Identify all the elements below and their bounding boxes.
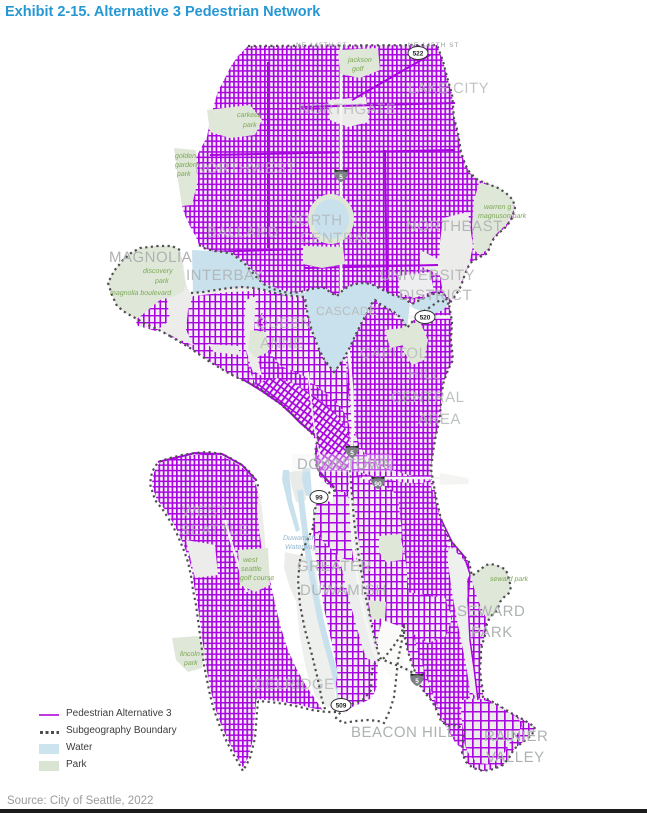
svg-text:509: 509: [336, 703, 347, 710]
svg-text:golf course: golf course: [240, 574, 274, 582]
svg-text:magnuson park: magnuson park: [478, 212, 527, 220]
svg-text:5: 5: [415, 678, 419, 685]
svg-text:seward park: seward park: [490, 575, 529, 583]
svg-text:golden: golden: [175, 152, 196, 160]
svg-text:carkeek: carkeek: [237, 111, 262, 119]
svg-text:ANNE: ANNE: [260, 335, 304, 352]
svg-text:DUWAMISH: DUWAMISH: [300, 582, 387, 599]
svg-text:PARK: PARK: [471, 624, 513, 641]
svg-text:DOWNTOWN: DOWNTOWN: [297, 456, 394, 473]
svg-text:park: park: [176, 170, 191, 178]
svg-text:golf: golf: [352, 65, 364, 73]
svg-text:CASCADE: CASCADE: [316, 304, 378, 318]
svg-text:NORTHWEST: NORTHWEST: [195, 160, 296, 177]
svg-text:park: park: [242, 121, 257, 129]
svg-text:522: 522: [413, 51, 424, 58]
svg-text:NORTHEAST: NORTHEAST: [406, 218, 503, 235]
svg-text:Duwamish: Duwamish: [283, 534, 316, 542]
svg-text:garden: garden: [175, 161, 197, 169]
svg-text:lincoln: lincoln: [180, 650, 200, 658]
svg-text:99: 99: [315, 495, 323, 502]
svg-text:GREATER: GREATER: [297, 558, 372, 575]
svg-text:520: 520: [420, 315, 431, 322]
svg-text:VALLEY: VALLEY: [486, 749, 545, 766]
svg-text:DISTRICT: DISTRICT: [399, 287, 472, 304]
svg-text:CAPITOL: CAPITOL: [360, 345, 427, 362]
svg-text:Waterway: Waterway: [285, 544, 316, 551]
svg-text:SEWARD: SEWARD: [457, 603, 525, 620]
svg-text:RAINIER: RAINIER: [484, 728, 548, 745]
svg-text:CENTRAL: CENTRAL: [391, 389, 465, 406]
svg-text:park: park: [183, 659, 198, 667]
svg-text:LAKE CITY: LAKE CITY: [408, 80, 489, 97]
svg-text:SEATTLE: SEATTLE: [180, 522, 249, 539]
svg-text:HILL: HILL: [408, 366, 442, 383]
svg-text:BALLARD: BALLARD: [207, 224, 279, 241]
svg-text:magnolia boulevard: magnolia boulevard: [110, 289, 172, 297]
svg-text:BEACON HILL: BEACON HILL: [351, 724, 456, 741]
svg-text:5: 5: [339, 174, 343, 181]
svg-text:seattle: seattle: [241, 565, 262, 573]
svg-text:west: west: [243, 557, 258, 564]
svg-text:NE 145TH ST: NE 145TH ST: [296, 42, 347, 49]
svg-text:MAGNOLIA: MAGNOLIA: [109, 249, 192, 266]
svg-text:CENTRAL: CENTRAL: [300, 230, 374, 247]
svg-text:AREA: AREA: [418, 411, 461, 428]
svg-text:INTERBAY: INTERBAY: [186, 267, 264, 284]
svg-text:NORTHGATE: NORTHGATE: [299, 101, 396, 118]
svg-text:WEST: WEST: [182, 503, 227, 520]
svg-text:park: park: [154, 277, 169, 285]
svg-text:5: 5: [350, 450, 354, 457]
svg-text:jackson: jackson: [347, 56, 372, 64]
svg-text:DELRIDGE: DELRIDGE: [254, 676, 335, 693]
svg-text:QUEEN: QUEEN: [256, 315, 312, 332]
svg-text:90: 90: [374, 481, 382, 488]
svg-text:NORTH: NORTH: [287, 212, 343, 229]
svg-text:UNIVERSITY: UNIVERSITY: [380, 267, 475, 284]
svg-text:discovery: discovery: [143, 267, 173, 275]
svg-text:warren g: warren g: [484, 204, 511, 211]
